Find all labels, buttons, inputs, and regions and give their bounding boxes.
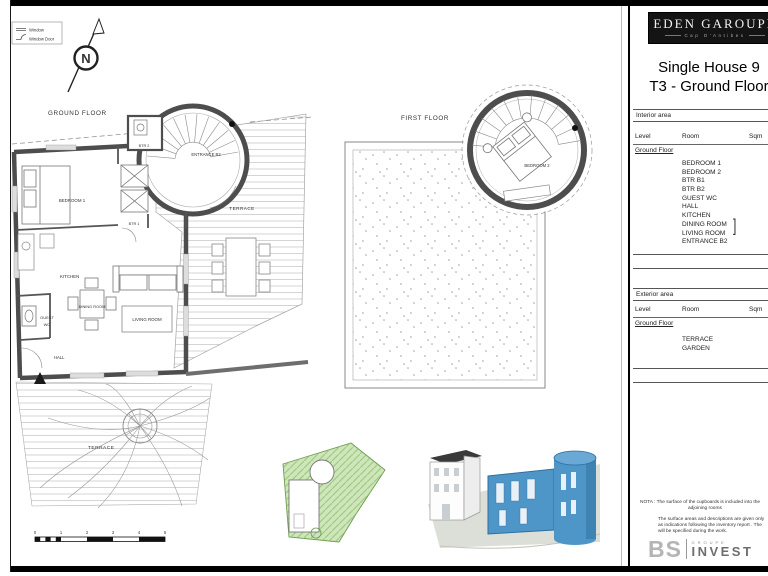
nota-line: The surface areas and descriptions are g… (658, 517, 764, 522)
table-row: KITCHEN 6.10 m² (633, 212, 768, 221)
row-room: BTR B2 (682, 186, 705, 195)
table-row-combined: DINING ROOM LIVING ROOM ] 22.70 m² (633, 221, 768, 238)
table-row: BTR B2 3.40 m² (633, 186, 768, 195)
legend-window-door-label: Window Door (29, 37, 55, 42)
row-room: ENTRANCE B2 (682, 238, 728, 247)
col-level: Level (635, 306, 651, 313)
col-level: Level (635, 133, 651, 140)
survey-dot-2 (572, 125, 578, 131)
ground-floor-title: GROUND FLOOR (48, 110, 107, 117)
nota-line: will be specified during the work. (658, 529, 727, 534)
brand-name: EDEN GAROUPE (649, 16, 768, 32)
bedroom2-label: BEDROOM 2 (524, 163, 550, 168)
floor-plan-drawing: Window Window Door N GROUND FLOOR (10, 6, 622, 566)
table-row: TERRACE 65.50 m² (633, 336, 768, 345)
scale-tick-3: 3 (112, 530, 115, 535)
kitchen-label: KITCHEN (60, 274, 79, 279)
blue-house (488, 451, 596, 545)
row-room: GARDEN (682, 345, 710, 354)
title-block-panel: EDEN GAROUPE Cap D'Antibes Single House … (630, 0, 768, 576)
row-room: HALL (682, 203, 698, 212)
hall-label: HALL (54, 355, 65, 360)
row-room: KITCHEN (682, 212, 711, 221)
interior-level: Ground Floor (635, 147, 673, 154)
site-plan-mini (283, 443, 385, 542)
col-room: Room (682, 306, 699, 313)
scale-tick-1: 1 (60, 530, 63, 535)
btr2-label: BTR 2 (139, 144, 150, 148)
table-row: BEDROOM 1 14.25 m² (633, 160, 768, 169)
first-floor-plan: FIRST FLOOR BEDROOM 2 (345, 85, 592, 388)
row-room: GUEST WC (682, 195, 717, 204)
table-row: BTR B1 2.40 m² (633, 177, 768, 186)
neighbor-building (430, 450, 482, 520)
nota-line: adjoining rooms (688, 506, 722, 511)
guest-wc-label-1: GUEST (40, 315, 54, 320)
bs-invest-logo: BS GROUPE INVEST (648, 538, 753, 560)
btr1-label: BTR 1 (129, 222, 140, 226)
living-room-label: LIVING ROOM (132, 317, 162, 322)
row-room: DINING ROOM (682, 221, 768, 230)
bs-logo-divider (686, 539, 688, 559)
sheet-title-line1: Single House 9 (630, 59, 768, 76)
north-letter: N (81, 51, 90, 66)
closets (121, 165, 148, 212)
nota-line: as indications following the inventory r… (658, 523, 762, 528)
scale-tick-4: 4 (138, 530, 141, 535)
btr2-room: BTR 2 (128, 116, 162, 150)
interior-rows: BEDROOM 1 14.25 m² BEDROOM 2 12.15 m² BT… (633, 160, 768, 247)
exterior-column-header: Level Room Sqm (633, 306, 768, 318)
sofa (113, 266, 183, 292)
legend: Window Window Door (12, 22, 62, 44)
row-room: BEDROOM 1 (682, 160, 721, 169)
invest-label: INVEST (691, 545, 753, 558)
interior-column-header: Level Room Sqm (633, 133, 768, 145)
entrance-b2-label: ENTRANCE B2 (191, 152, 221, 157)
bs-letters: BS (648, 538, 682, 560)
row-room: BEDROOM 2 (682, 169, 721, 178)
sheet-title-line2: T3 - Ground Floor (630, 78, 768, 95)
garden-area: TERRACE (16, 382, 212, 508)
bed-1 (22, 166, 70, 224)
guest-wc-label-2: WC (44, 322, 51, 327)
exterior-level: Ground Floor (635, 320, 673, 327)
brand-tagline: Cap D'Antibes (649, 33, 768, 38)
col-room: Room (682, 133, 699, 140)
bracket-glyph: ] (733, 220, 736, 233)
survey-dot (229, 121, 235, 127)
scale-tick-2: 2 (86, 530, 89, 535)
row-room: LIVING ROOM (682, 230, 768, 239)
interior-total: 77.80 m² (633, 254, 768, 269)
nota-line: NOTA : The surface of the cupboards is i… (640, 500, 760, 505)
legend-window-label: Window (29, 28, 45, 33)
exterior-total: 152.70 m² (633, 368, 768, 383)
table-row: HALL 2.40 m² (633, 203, 768, 212)
exterior-area-heading: Exterior area (633, 288, 768, 301)
terrace-lower-label: TERRACE (88, 445, 114, 451)
scale-tick-0: 0 (34, 530, 37, 535)
table-row: ENTRANCE B2 13.10 m² (633, 238, 768, 247)
scale-tick-5: 5 (164, 530, 167, 535)
render-3d (428, 450, 600, 548)
kitchen-counter (18, 234, 54, 270)
scale-bar: 0 1 2 3 4 5 (34, 530, 167, 542)
row-room: TERRACE (682, 336, 713, 345)
north-arrow-icon: N (68, 19, 104, 92)
table-row: BEDROOM 2 12.15 m² (633, 169, 768, 178)
dining-room-label: DINING ROOM (79, 304, 106, 309)
table-row: GUEST WC 1.30 m² (633, 195, 768, 204)
terrace-upper-label: TERRACE (229, 206, 254, 211)
ground-floor-plan: GROUND FLOOR TERRACE (12, 106, 312, 508)
interior-area-heading: Interior area (633, 109, 768, 122)
col-sqm: Sqm (749, 306, 762, 313)
table-row: GARDEN 87.20 m² (633, 345, 768, 354)
col-sqm: Sqm (749, 133, 762, 140)
row-room: BTR B1 (682, 177, 705, 186)
first-floor-title: FIRST FLOOR (401, 115, 449, 122)
bedroom1-label: BEDROOM 1 (59, 198, 86, 203)
brand-logo: EDEN GAROUPE Cap D'Antibes (648, 12, 768, 44)
exterior-rows: TERRACE 65.50 m² GARDEN 87.20 m² (633, 336, 768, 353)
outdoor-table (212, 238, 270, 296)
